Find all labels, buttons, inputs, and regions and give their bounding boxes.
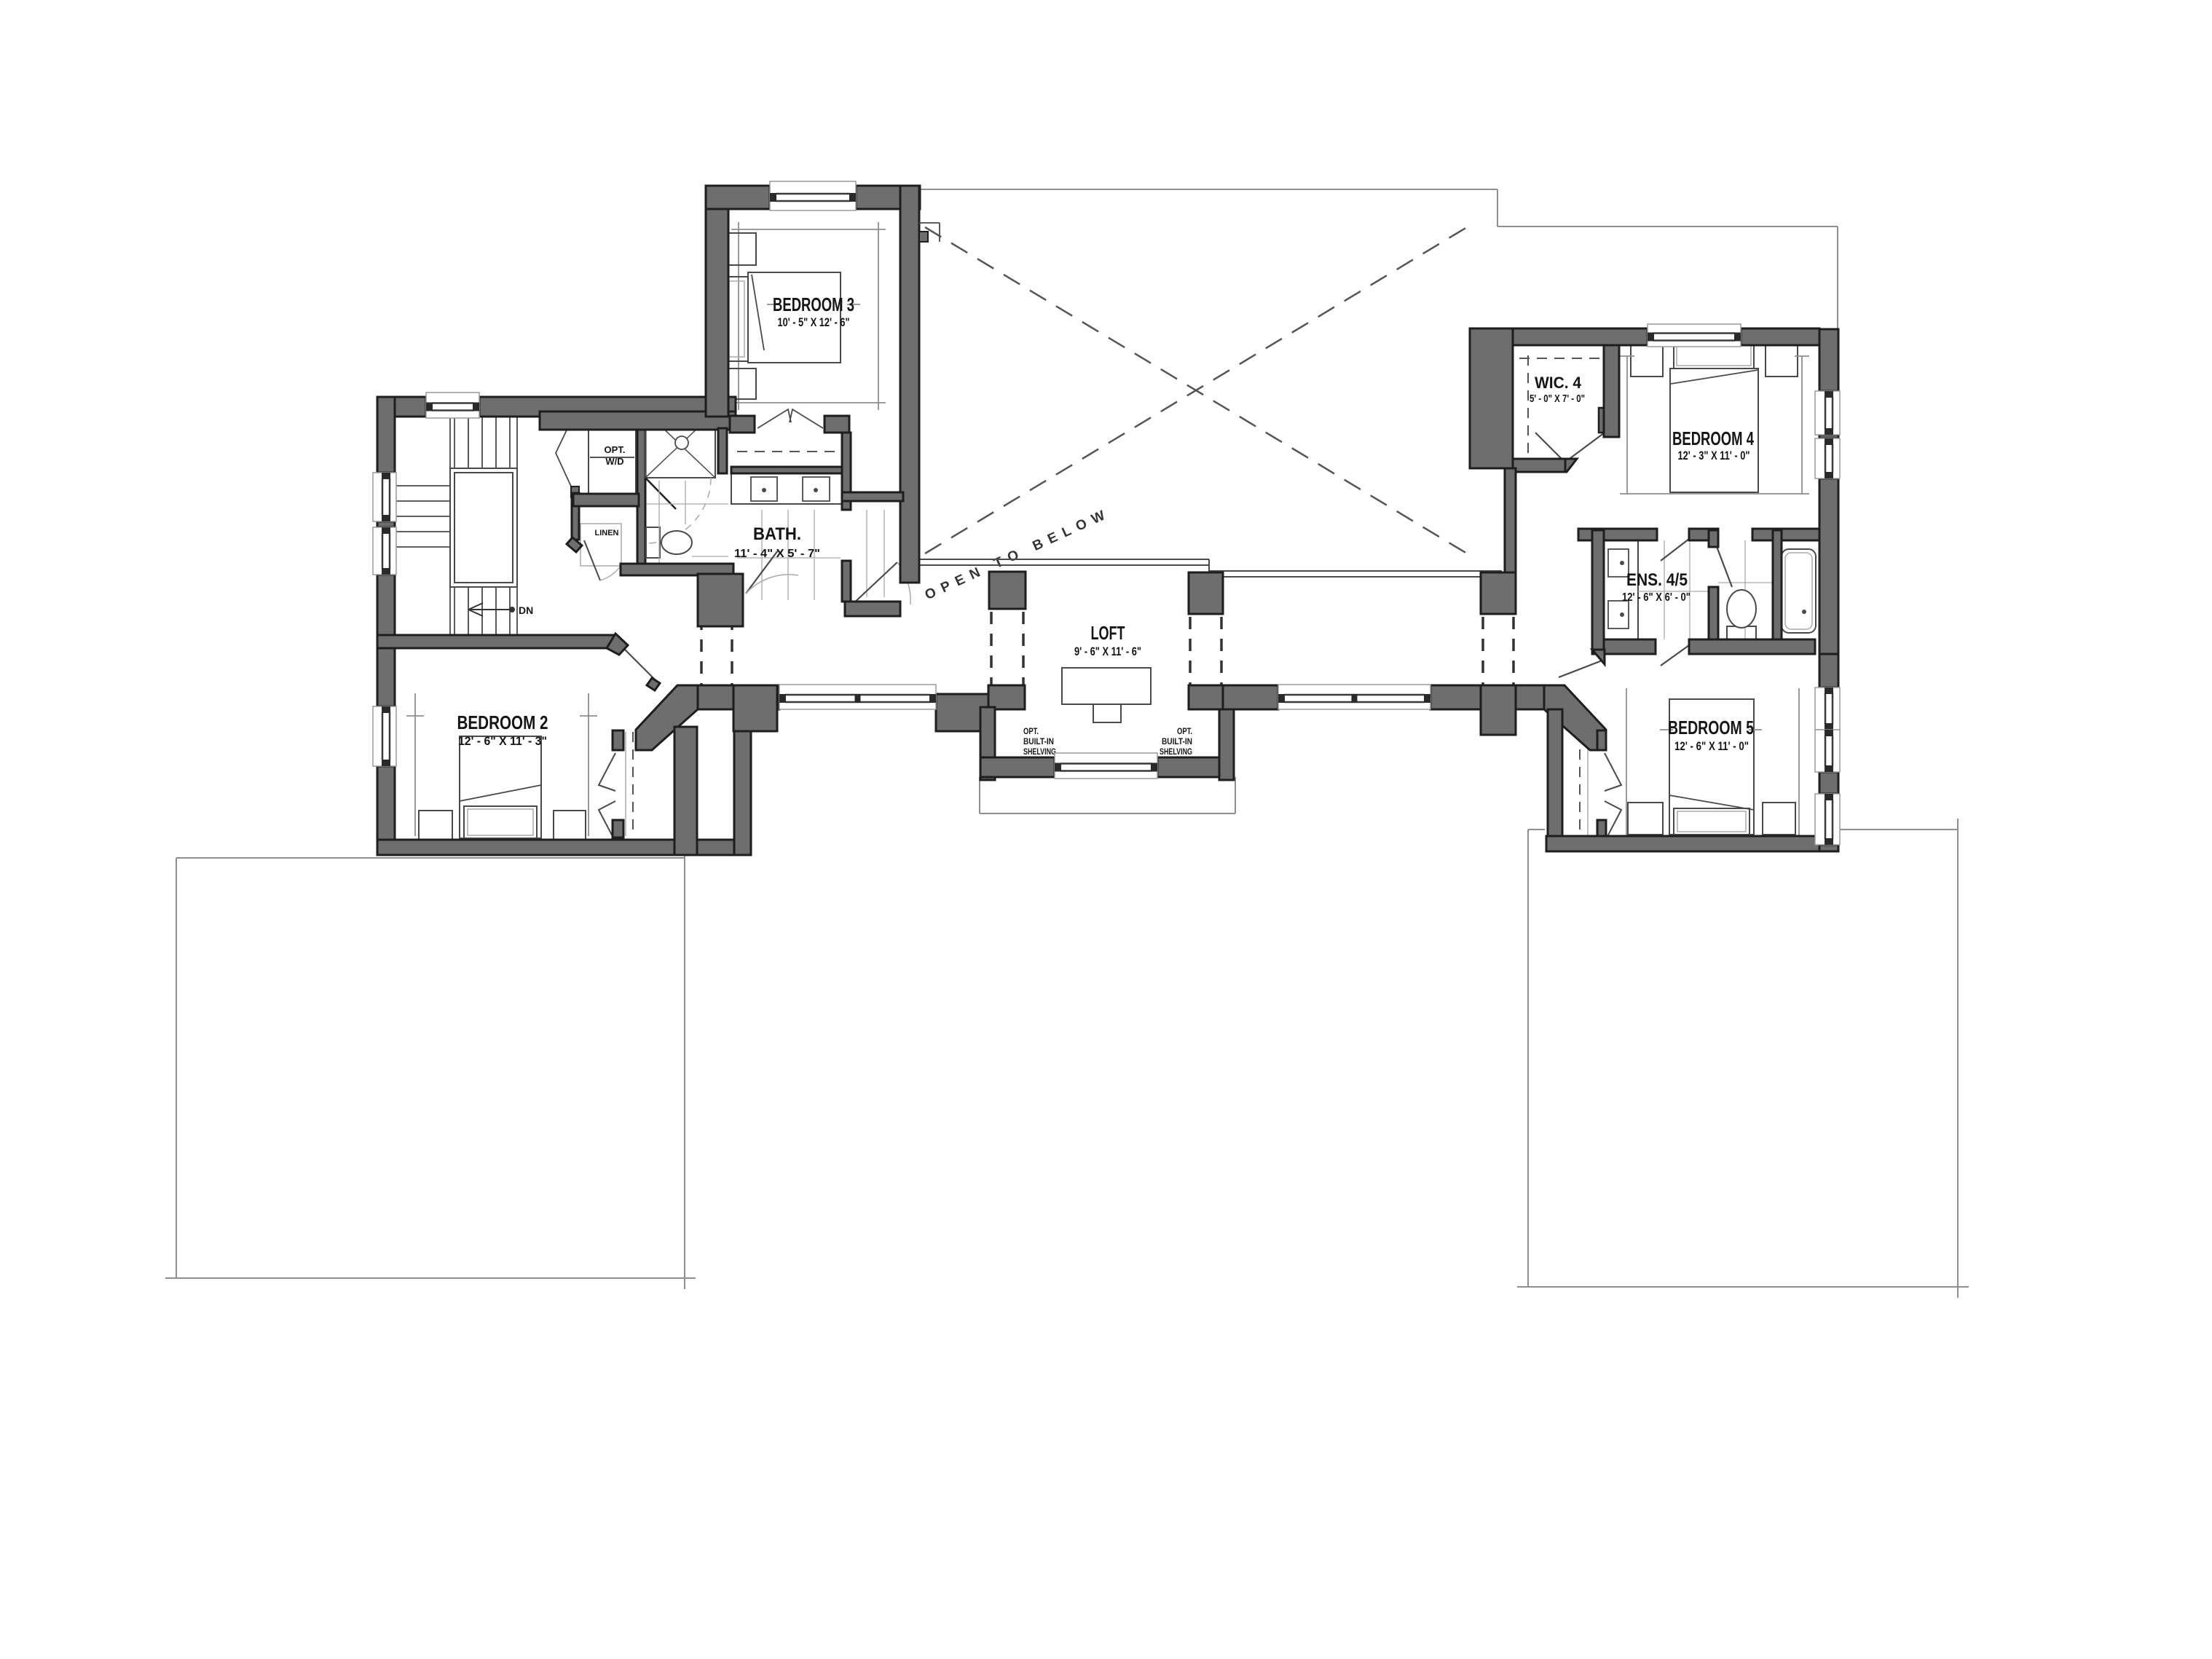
svg-text:OPT.: OPT. [1177, 726, 1192, 736]
svg-text:BEDROOM 3: BEDROOM 3 [773, 293, 854, 315]
svg-text:12' - 6" X 6' - 0": 12' - 6" X 6' - 0" [1622, 591, 1691, 604]
svg-text:BATH.: BATH. [753, 524, 801, 544]
svg-text:SHELVING: SHELVING [1160, 746, 1192, 757]
svg-text:BEDROOM 4: BEDROOM 4 [1672, 427, 1754, 449]
svg-text:12' - 3" X 11' - 0": 12' - 3" X 11' - 0" [1678, 449, 1750, 462]
svg-text:9' - 6" X 11' - 6": 9' - 6" X 11' - 6" [1074, 645, 1141, 658]
svg-text:WIC. 4: WIC. 4 [1535, 374, 1582, 392]
svg-text:12' - 6" X 11' - 3": 12' - 6" X 11' - 3" [458, 734, 547, 748]
svg-text:OPT.: OPT. [1023, 726, 1039, 736]
svg-text:SHELVING: SHELVING [1023, 746, 1056, 757]
svg-text:12' - 6" X 11' - 0": 12' - 6" X 11' - 0" [1674, 739, 1749, 753]
svg-text:BUILT-IN: BUILT-IN [1162, 736, 1192, 746]
svg-text:BUILT-IN: BUILT-IN [1023, 736, 1054, 746]
svg-text:10' - 5" X 12' - 6": 10' - 5" X 12' - 6" [778, 315, 850, 329]
svg-text:11' - 4" X 5' - 7": 11' - 4" X 5' - 7" [734, 548, 820, 560]
svg-text:ENS. 4/5: ENS. 4/5 [1626, 570, 1688, 590]
svg-text:OPT.: OPT. [605, 444, 626, 455]
svg-text:W/D: W/D [605, 456, 623, 467]
svg-text:BEDROOM 5: BEDROOM 5 [1668, 717, 1754, 738]
svg-text:LINEN: LINEN [595, 529, 619, 537]
svg-text:DN: DN [519, 604, 533, 616]
svg-text:BEDROOM 2: BEDROOM 2 [457, 712, 548, 733]
svg-text:LOFT: LOFT [1091, 622, 1125, 644]
svg-text:5' - 0" X 7' - 0": 5' - 0" X 7' - 0" [1530, 393, 1585, 405]
